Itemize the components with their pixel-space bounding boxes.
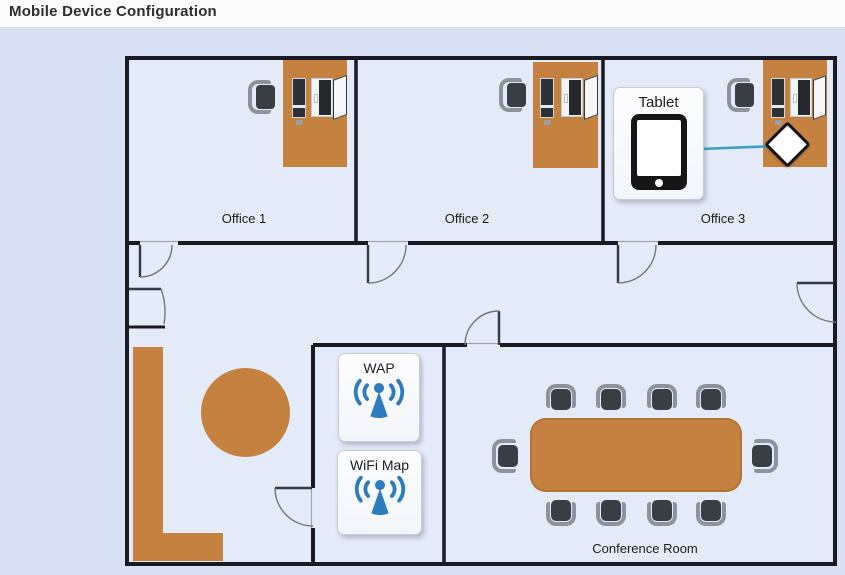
tablet-label: Tablet	[638, 94, 678, 111]
floor-plan-walls	[0, 27, 845, 575]
tablet-wap-connection-line	[700, 146, 776, 149]
wifi-map-device-card[interactable]: WiFi Map	[337, 450, 422, 535]
walls-group	[127, 58, 835, 564]
wifi-antenna-icon	[352, 475, 408, 517]
mobile-device-configuration-screen: Mobile Device Configuration	[0, 0, 845, 575]
room-label-office-3: Office 3	[668, 211, 778, 226]
door-swing-arc	[275, 488, 313, 526]
page-title: Mobile Device Configuration	[9, 3, 217, 20]
room-label-office-2: Office 2	[412, 211, 522, 226]
tablet-device-card[interactable]: Tablet	[613, 87, 704, 200]
door-swing-arc	[161, 289, 165, 324]
door-swing-arcs-group	[140, 245, 836, 526]
wifi-antenna-icon	[351, 378, 407, 420]
room-label-conference-room: Conference Room	[560, 541, 730, 556]
door-swing-arc	[368, 245, 406, 283]
wap-device-card[interactable]: WAP	[338, 353, 420, 442]
door-swing-arc	[140, 245, 172, 277]
wap-label: WAP	[363, 360, 394, 376]
room-label-office-1: Office 1	[189, 211, 299, 226]
tablet-icon	[631, 114, 687, 190]
outer-wall	[127, 58, 835, 564]
wifi-map-label: WiFi Map	[350, 457, 409, 473]
door-swing-arc	[797, 283, 836, 322]
floor-plan-canvas: Office 1 Office 2 Office 3 Conference Ro…	[0, 27, 845, 575]
door-swing-arc	[465, 311, 499, 345]
door-swing-arc	[618, 245, 656, 283]
door-leaves-group	[129, 245, 834, 488]
title-bar: Mobile Device Configuration	[0, 0, 845, 27]
